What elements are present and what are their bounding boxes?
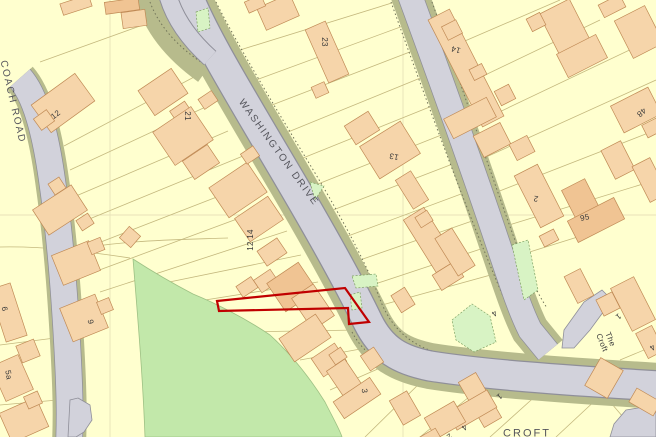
- house-number: 6: [0, 306, 8, 312]
- house-number: 9: [86, 319, 95, 325]
- house-number: 21: [183, 111, 191, 121]
- house-number: 13: [389, 151, 400, 161]
- street-label-croft: CROFT: [503, 429, 551, 437]
- house-number: 12 14: [247, 229, 255, 251]
- map-canvas[interactable]: COACH ROAD WASHINGTON DRIVE CROFT The Cr…: [0, 0, 656, 437]
- house-number: 3: [360, 388, 368, 393]
- house-number: 5a: [3, 370, 13, 381]
- house-number: 23: [320, 37, 328, 47]
- house-number: 14: [450, 44, 461, 54]
- map-drawing: [0, 0, 656, 437]
